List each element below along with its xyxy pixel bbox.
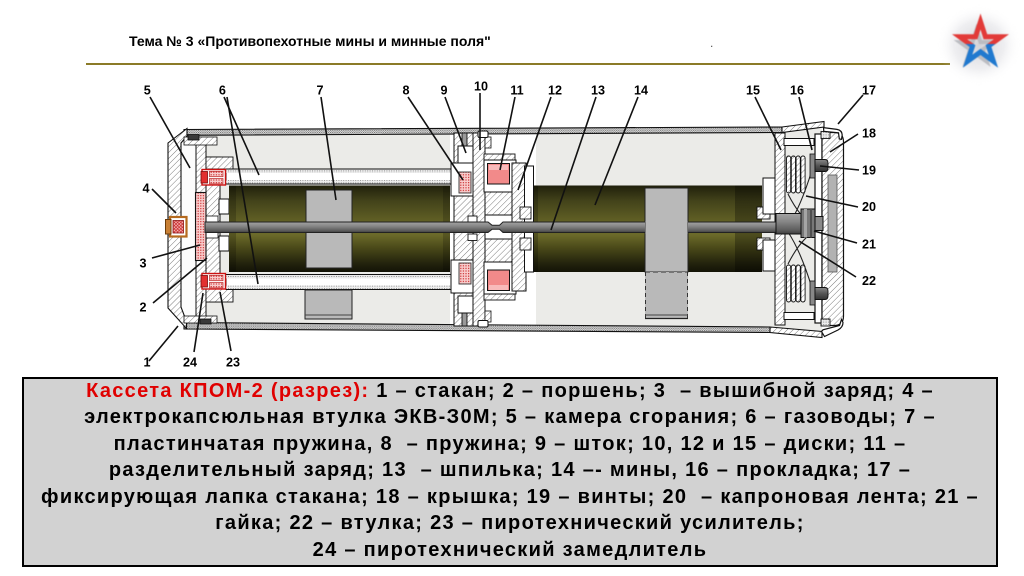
svg-text:20: 20 (862, 200, 876, 214)
svg-text:10: 10 (474, 80, 488, 94)
svg-text:18: 18 (862, 126, 876, 140)
svg-text:22: 22 (862, 274, 876, 288)
svg-text:3: 3 (139, 256, 146, 270)
svg-text:14: 14 (634, 83, 648, 97)
svg-text:19: 19 (862, 163, 876, 177)
svg-text:9: 9 (440, 83, 447, 97)
svg-text:8: 8 (402, 83, 409, 97)
svg-text:17: 17 (862, 83, 876, 97)
svg-text:6: 6 (219, 83, 226, 97)
svg-text:11: 11 (510, 83, 523, 97)
svg-text:16: 16 (790, 83, 804, 97)
svg-text:12: 12 (548, 83, 562, 97)
svg-text:13: 13 (591, 83, 605, 97)
svg-text:23: 23 (226, 356, 240, 370)
svg-text:1: 1 (143, 355, 150, 369)
svg-text:4: 4 (142, 181, 149, 195)
svg-text:15: 15 (746, 83, 760, 97)
svg-text:5: 5 (144, 83, 151, 97)
svg-text:7: 7 (316, 83, 323, 97)
svg-text:2: 2 (139, 300, 146, 314)
svg-text:21: 21 (862, 237, 876, 251)
svg-text:24: 24 (183, 356, 197, 370)
